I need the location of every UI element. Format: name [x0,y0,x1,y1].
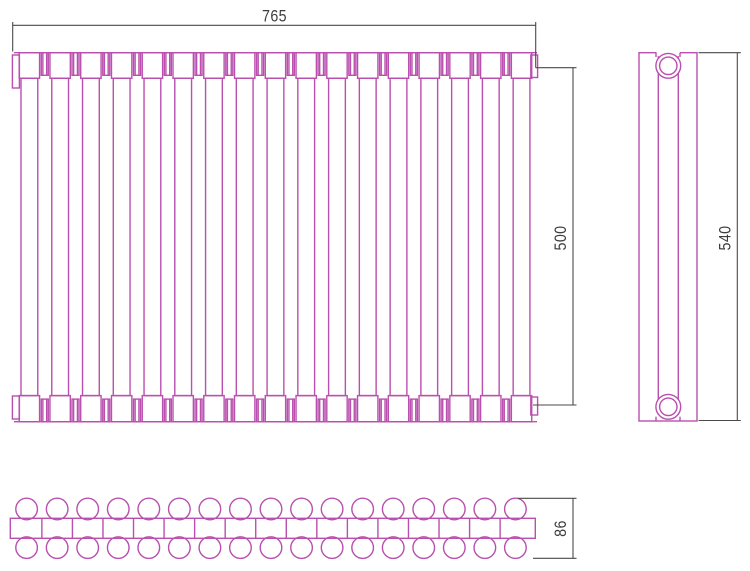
section-instance [111,53,131,422]
radiator-dimensional-drawing: 765 500 540 86 [0,0,750,571]
section-instance [481,53,501,422]
nipple-instance [164,53,171,422]
section-instance [296,53,316,422]
nipple-instance [103,53,110,422]
nipple-instance [472,53,479,422]
nipple-instance [380,53,387,422]
section-instance [50,53,70,422]
front-view [12,53,537,422]
side-view [639,52,697,421]
front-view-sections [19,53,532,422]
overall-height-dimension-label: 540 [716,225,734,250]
top-view-divisions [42,518,500,538]
tv-circles-instance [107,498,129,558]
top-view [10,498,535,558]
tv-circles-instance [321,498,343,558]
section-instance [19,53,39,422]
tv-circles-instance [382,498,404,558]
section-instance [450,53,470,422]
tv-circles-instance [199,498,221,558]
tv-circles-instance [230,498,252,558]
dimension-depth: 86 [518,498,577,558]
dimension-width: 765 [13,7,536,67]
tv-circles-instance [505,498,527,558]
section-instance [358,53,378,422]
nipple-instance [257,53,264,422]
section-instance [204,53,224,422]
tv-circles-instance [169,498,191,558]
nipple-instance [349,53,356,422]
dimension-axial-height: 500 [533,68,577,405]
side-profile-outline [639,53,697,421]
tv-circles-instance [413,498,435,558]
section-instance [81,53,101,422]
nipple-instance [41,53,48,422]
section-instance [511,53,531,422]
nipple-instance [72,53,79,422]
depth-dimension-label: 86 [552,520,570,537]
nipple-instance [318,53,325,422]
nipple-instance [503,53,510,422]
drawing-canvas: 765 500 540 86 [0,0,750,571]
top-view-tubes [16,498,526,558]
nipple-instance [287,53,294,422]
nipple-instance [410,53,417,422]
nipple-instance [195,53,202,422]
tv-circles-instance [352,498,374,558]
top-view-web-band [10,518,535,538]
section-instance [142,53,162,422]
nipple-instance [441,53,448,422]
section-instance [388,53,408,422]
left-top-plug [12,55,19,88]
tv-circles-instance [291,498,313,558]
left-bottom-plug [12,396,19,419]
tv-circles-instance [46,498,68,558]
front-view-connectors [41,53,509,422]
nipple-instance [134,53,141,422]
section-instance [265,53,285,422]
dimension-overall-height: 540 [699,53,741,421]
tv-circles-instance [16,498,38,558]
tv-circles-instance [260,498,282,558]
section-instance [327,53,347,422]
section-instance [235,53,255,422]
tv-circles-instance [444,498,466,558]
width-dimension-label: 765 [262,7,287,25]
tv-circles-instance [138,498,160,558]
tv-circles-instance [474,498,496,558]
section-instance [419,53,439,422]
section-instance [173,53,193,422]
axial-height-dimension-label: 500 [552,225,570,250]
tv-circles-instance [77,498,99,558]
nipple-instance [226,53,233,422]
